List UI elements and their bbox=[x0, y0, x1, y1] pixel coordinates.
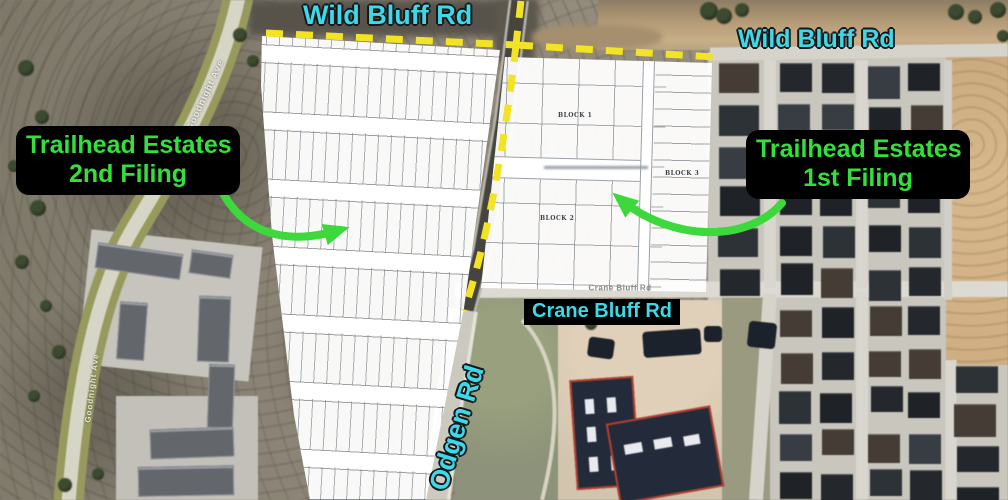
annotated-aerial-map: BLOCK 1 BLOCK 2 BLOCK 3 Goodnight Ave Go… bbox=[0, 0, 1008, 500]
boundary-dash-south bbox=[464, 45, 516, 311]
boundary-dash-east bbox=[516, 45, 714, 57]
callout-line2: 2nd Filing bbox=[26, 160, 230, 189]
callout-line1: Trailhead Estates bbox=[756, 135, 960, 164]
annotation-layer bbox=[0, 0, 1008, 500]
label-wild-bluff-rd-right: Wild Bluff Rd bbox=[738, 25, 895, 54]
callout-2nd-filing: Trailhead Estates 2nd Filing bbox=[16, 126, 240, 195]
boundary-dash-north bbox=[516, 1, 521, 45]
arrow-to-1st-filing bbox=[620, 199, 782, 232]
boundary-dash-west bbox=[266, 33, 516, 45]
label-wild-bluff-rd-left: Wild Bluff Rd bbox=[303, 0, 472, 31]
callout-1st-filing: Trailhead Estates 1st Filing bbox=[746, 130, 970, 199]
callout-line2: 1st Filing bbox=[756, 164, 960, 193]
street-name-crane-bluff-small: Crane Bluff Rd bbox=[589, 284, 652, 293]
callout-line1: Trailhead Estates bbox=[26, 131, 230, 160]
label-crane-bluff-rd: Crane Bluff Rd bbox=[524, 299, 680, 325]
